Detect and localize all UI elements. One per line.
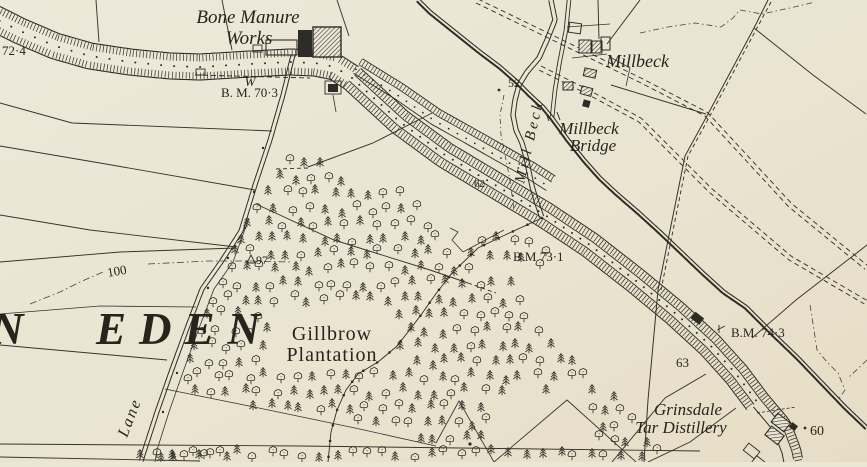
svg-text:63: 63 [676,355,689,370]
svg-text:52: 52 [508,76,520,90]
svg-text:Millbeck: Millbeck [605,51,670,71]
svg-text:60: 60 [810,424,824,439]
svg-text:B.M. 74·3: B.M. 74·3 [731,325,785,340]
svg-text:72·4: 72·4 [2,43,26,58]
svg-text:Works: Works [226,28,273,49]
svg-text:62: 62 [474,178,485,190]
svg-text:Plantation: Plantation [286,344,377,366]
svg-text:N: N [0,304,25,354]
svg-text:97: 97 [256,253,268,267]
svg-text:Grinsdale: Grinsdale [654,400,722,419]
svg-text:Bone Manure: Bone Manure [196,7,299,28]
svg-text:Tar Distillery: Tar Distillery [635,418,727,437]
svg-text:W: W [245,74,257,89]
svg-text:EDEN: EDEN [95,304,273,354]
svg-text:Gillbrow: Gillbrow [292,323,372,345]
svg-text:Bridge: Bridge [570,136,617,155]
svg-text:B.M 73·1: B.M 73·1 [513,249,564,264]
